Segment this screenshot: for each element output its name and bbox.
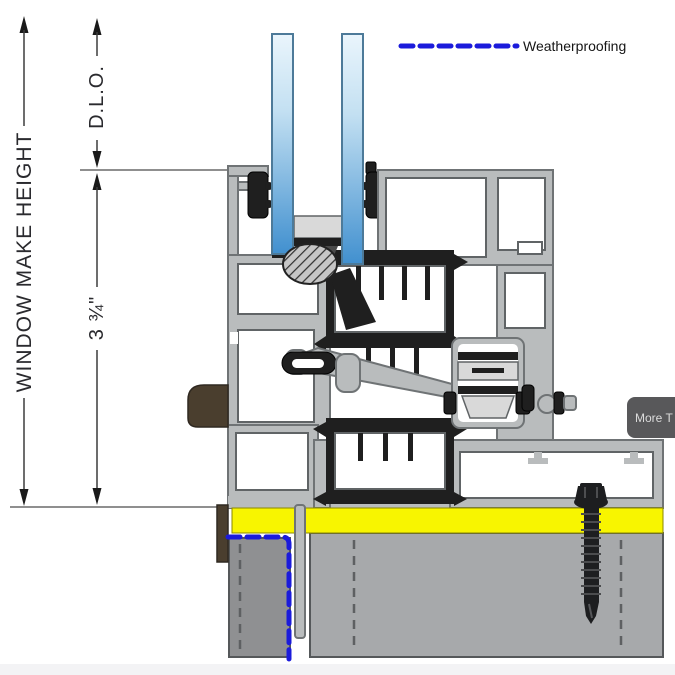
left-glazing-gasket bbox=[248, 172, 268, 218]
dimension-window-make-height: WINDOW MAKE HEIGHT bbox=[13, 16, 36, 506]
window-make-height-label: WINDOW MAKE HEIGHT bbox=[13, 132, 36, 393]
weatherproofing-legend-label: Weatherproofing bbox=[523, 38, 626, 54]
butyl-seal-hatch bbox=[283, 244, 337, 284]
glass-pane-right bbox=[342, 34, 363, 264]
page-bottom-band bbox=[0, 664, 675, 675]
detail-drawing-canvas: WINDOW MAKE HEIGHT D.L.O. 3 ¾" Weatherpr… bbox=[0, 0, 675, 675]
sill-flashing-leg bbox=[295, 505, 305, 638]
frame-height-label: 3 ¾" bbox=[86, 296, 108, 340]
dimension-dlo: D.L.O. bbox=[86, 18, 108, 168]
dimension-frame-height: 3 ¾" bbox=[86, 173, 108, 505]
dlo-label: D.L.O. bbox=[86, 65, 108, 129]
more-button-label: More T bbox=[635, 411, 673, 425]
legend-weatherproofing: Weatherproofing bbox=[401, 38, 626, 54]
glazing-spacer bbox=[294, 216, 342, 238]
more-button[interactable]: More T bbox=[627, 397, 675, 438]
sealant-brown-cap bbox=[217, 505, 228, 562]
hardware-clip bbox=[444, 338, 530, 428]
snap-hook-notch bbox=[230, 332, 238, 344]
concrete-right-slab bbox=[310, 533, 663, 657]
thermal-break-lower bbox=[313, 418, 467, 506]
concrete-left-block bbox=[229, 538, 290, 657]
detail-drawing-page: WINDOW MAKE HEIGHT D.L.O. 3 ¾" Weatherpr… bbox=[0, 0, 675, 675]
sealant-brown-blob bbox=[188, 385, 228, 427]
glass-pane-left bbox=[272, 34, 293, 254]
